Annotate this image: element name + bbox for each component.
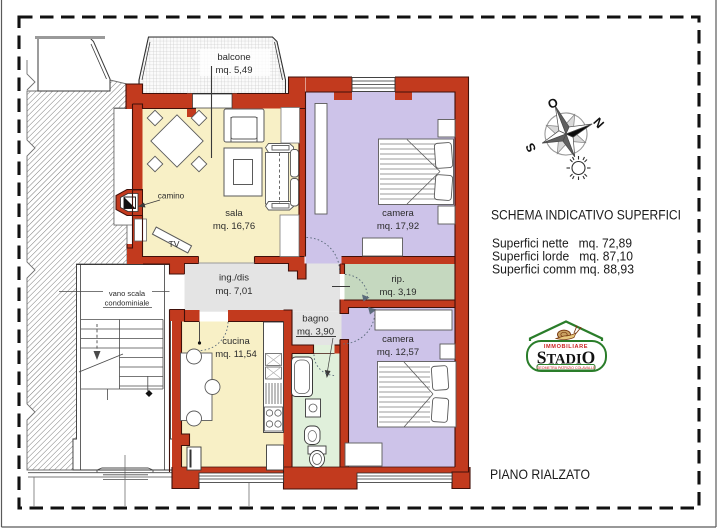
svg-text:mq. 16,76: mq. 16,76: [213, 221, 255, 232]
svg-text:PIANO RIALZATO: PIANO RIALZATO: [490, 467, 590, 482]
svg-text:sala: sala: [225, 208, 243, 219]
svg-text:balcone: balcone: [217, 52, 250, 63]
svg-text:camera: camera: [382, 334, 414, 345]
svg-text:mq. 11,54: mq. 11,54: [215, 349, 257, 360]
svg-text:ing./dis: ing./dis: [219, 273, 249, 284]
svg-text:TV: TV: [169, 239, 180, 249]
svg-text:rip.: rip.: [391, 274, 404, 285]
svg-text:bagno: bagno: [302, 314, 328, 325]
svg-text:mq. 17,92: mq. 17,92: [377, 221, 419, 232]
svg-text:cucina: cucina: [222, 336, 250, 347]
svg-text:mq. 3,90: mq. 3,90: [297, 327, 334, 338]
svg-text:mq. 7,01: mq. 7,01: [216, 286, 253, 297]
svg-text:camino: camino: [158, 192, 185, 201]
svg-text:vano scala: vano scala: [109, 289, 146, 298]
svg-text:camera: camera: [382, 208, 414, 219]
svg-text:Superfici comm mq. 88,93: Superfici comm mq. 88,93: [492, 262, 634, 277]
svg-text:mq. 5,49: mq. 5,49: [216, 65, 253, 76]
svg-text:condominiale: condominiale: [105, 299, 150, 308]
svg-text:mq. 12,57: mq. 12,57: [377, 347, 419, 358]
svg-text:GEOMETRA PATRIZIO COLAVALLE: GEOMETRA PATRIZIO COLAVALLE: [537, 366, 596, 370]
svg-text:mq. 3,19: mq. 3,19: [380, 287, 417, 298]
svg-text:SCHEMA INDICATIVO SUPERFICI: SCHEMA INDICATIVO SUPERFICI: [491, 208, 681, 223]
